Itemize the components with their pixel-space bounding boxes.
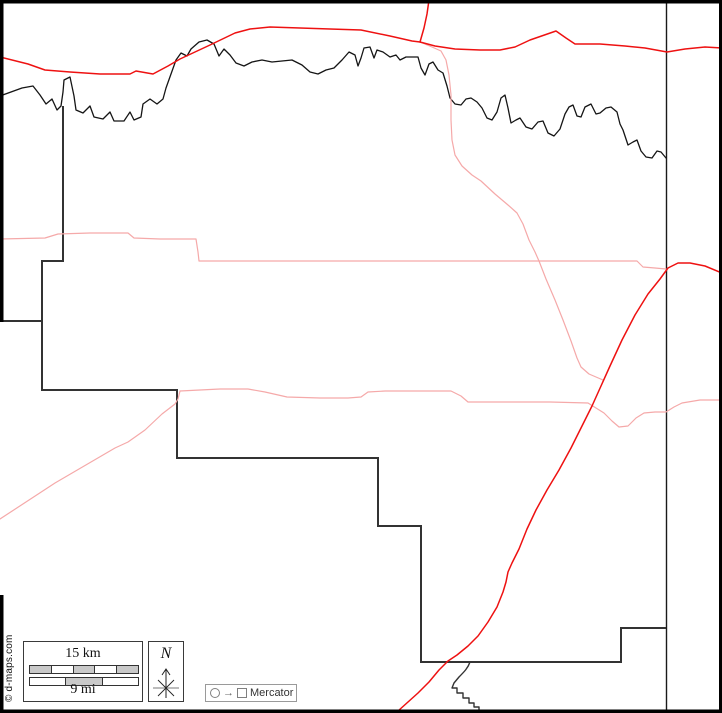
frame-top (0, 0, 722, 4)
frame-bottom (0, 710, 722, 713)
north-indicator: N (148, 641, 184, 702)
county-boundary-south-steps (452, 662, 479, 711)
projected-square-icon (237, 688, 247, 698)
primary-road-north (0, 27, 722, 74)
frame-left-upper (0, 0, 4, 322)
scale-segment (51, 666, 73, 673)
secondary-road-middle (0, 233, 666, 269)
scale-legend: 15 km 9 mi (23, 641, 143, 702)
scale-segment (94, 666, 116, 673)
frame-left-lower (0, 595, 4, 713)
scale-segment (30, 666, 51, 673)
map-canvas (0, 0, 722, 713)
scale-bar-km (29, 665, 139, 674)
scale-segment (116, 666, 138, 673)
attribution: © d-maps.com (4, 634, 15, 702)
compass-star-icon (153, 664, 179, 700)
secondary-road-northeast-diagonal (420, 42, 603, 380)
scale-km-label: 15 km (24, 647, 142, 661)
north-label: N (149, 645, 183, 663)
primary-road-north-spur (420, 0, 429, 42)
secondary-road-lower (180, 389, 722, 427)
primary-road-southeast (398, 263, 722, 711)
secondary-road-southwest-diagonal (0, 391, 180, 519)
county-boundary (42, 106, 666, 662)
scale-mi-label: 9 mi (24, 683, 142, 697)
globe-circle-icon (210, 688, 220, 698)
projection-label: Mercator (250, 688, 293, 699)
river-path (0, 40, 666, 158)
arrow-right-icon: → (223, 688, 234, 698)
scale-segment (73, 666, 95, 673)
map-stage: 15 km 9 mi N → Mercator (0, 0, 722, 713)
projection-legend: → Mercator (205, 684, 297, 702)
